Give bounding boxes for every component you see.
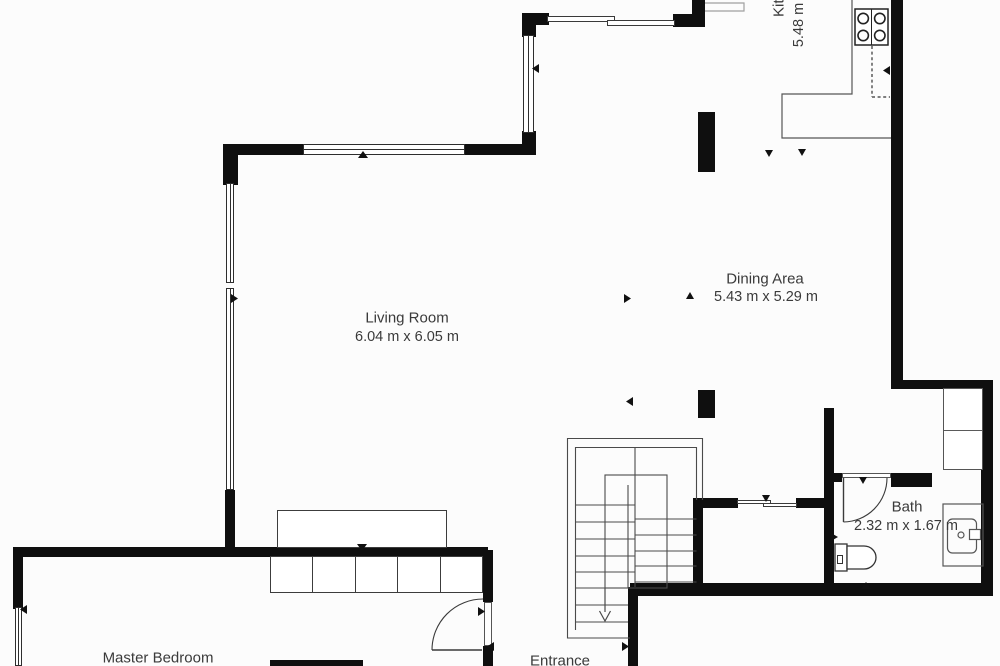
wall-bath-top-right	[891, 473, 932, 487]
wall-living-top-right	[465, 144, 522, 155]
closet	[943, 388, 983, 470]
wall-stairs-right	[693, 498, 703, 594]
wardrobe-cell	[356, 557, 398, 592]
wall-bottom-right	[630, 583, 993, 596]
wardrobe-cell	[313, 557, 355, 592]
toilet-icon	[835, 544, 876, 571]
room-dims-kitchen: 5.48 m	[791, 3, 807, 47]
closet-shelf	[944, 389, 982, 431]
door-frame-bedroom	[484, 602, 492, 646]
room-dims-dining: 5.43 m x 5.29 m	[714, 289, 818, 305]
window-bedroom-left	[15, 607, 22, 666]
bedroom-door	[432, 599, 483, 650]
wall-bedroom-right-lower	[483, 646, 493, 666]
walk-line-arrow	[600, 588, 611, 621]
window-living-left-1	[226, 183, 234, 283]
bath-door	[844, 478, 888, 522]
room-label-dining: Dining Area	[726, 271, 804, 288]
room-label-kitchen: Kitchen	[771, 0, 788, 17]
wall-entrance-left	[628, 587, 638, 666]
wall-hall-top-right	[796, 498, 825, 508]
room-dims-living: 6.04 m x 6.05 m	[355, 329, 459, 345]
door-frame-bath	[842, 473, 891, 478]
dishwasher-dashed-outline	[872, 46, 890, 97]
room-label-entrance: Entrance	[530, 653, 590, 666]
sofa	[277, 510, 447, 548]
wardrobe-cell	[271, 557, 313, 592]
sliding-door-hall-2	[763, 503, 797, 507]
stove-icon	[855, 9, 888, 45]
wall-stub-upper	[698, 112, 715, 172]
room-label-master-bedroom: Master Bedroom	[103, 650, 214, 666]
wardrobe-cell	[398, 557, 440, 592]
shower-icon	[943, 504, 983, 566]
window-living-left-2	[226, 288, 234, 490]
plan-linework	[0, 0, 1000, 666]
sliding-door-top-2	[607, 20, 675, 26]
wall-stub-lower	[698, 390, 715, 418]
wardrobe	[270, 556, 483, 593]
room-label-bath: Bath	[892, 499, 923, 516]
wall-bedroom-bottom	[270, 660, 363, 666]
wall-bedroom-right-upper	[483, 550, 493, 602]
wall-bath-left	[824, 408, 834, 588]
wall-right-upper	[891, 0, 903, 388]
floor-plan: Living Room 6.04 m x 6.05 m Dining Area …	[0, 0, 1000, 666]
wall-living-top-corner	[522, 131, 536, 155]
room-label-living: Living Room	[365, 310, 448, 327]
wall-bedroom-left-corner	[13, 547, 23, 609]
closet-shelf	[944, 431, 982, 470]
window-living-top	[303, 144, 465, 155]
room-dims-bath: 2.32 m x 1.67 m	[854, 518, 958, 534]
wall-living-top-left	[223, 144, 305, 155]
wall-top-right-v	[692, 0, 705, 20]
window-upper-left	[523, 35, 534, 133]
wardrobe-cell	[441, 557, 482, 592]
balcony-outline	[705, 3, 744, 11]
wall-bath-top-stub	[829, 473, 842, 482]
wall-top-corner-h	[522, 13, 549, 25]
sliding-door-top-1	[547, 16, 615, 22]
